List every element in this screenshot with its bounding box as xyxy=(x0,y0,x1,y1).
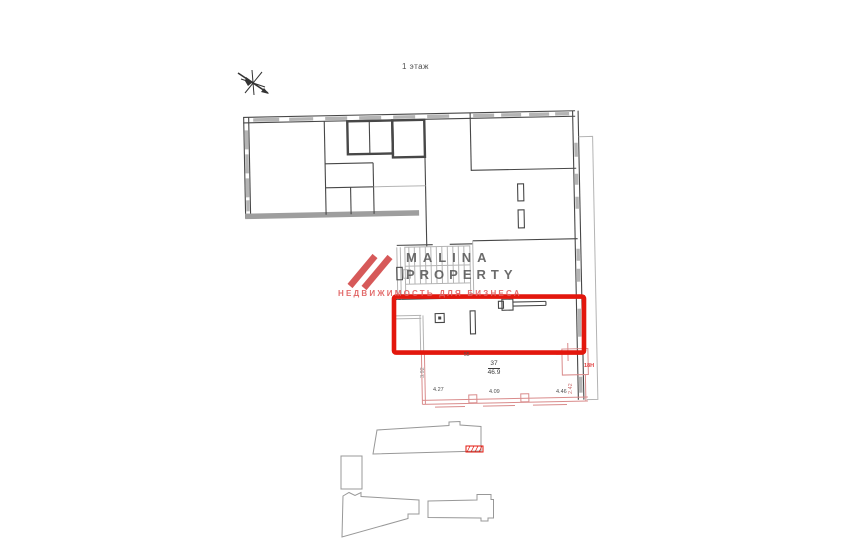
shaft-room-b xyxy=(392,120,425,158)
highlight-zone-interior xyxy=(395,298,547,352)
key-plan-building-3 xyxy=(428,495,494,522)
dimension-bottom-2: 4.09 xyxy=(489,389,500,395)
floor-label: 1 этаж xyxy=(402,62,429,71)
key-plan-building-2 xyxy=(342,493,419,538)
key-plan xyxy=(341,422,494,538)
highlight-rectangle xyxy=(394,297,584,353)
unit-number-area-label: 37 46.9 xyxy=(483,360,505,377)
thick-gray-wall xyxy=(245,213,419,216)
dimension-bottom-3: 4.46 xyxy=(556,389,567,395)
north-arrow-icon xyxy=(238,70,269,95)
unit-inline-note: 55 xyxy=(464,352,470,358)
watermark-brand-line1: MALINA xyxy=(406,250,493,265)
watermark-tagline: НЕДВИЖИМОСТЬ ДЛЯ БИЗНЕСА xyxy=(338,289,522,298)
unit-number: 37 xyxy=(488,360,499,369)
dimension-bottom-1: 4.27 xyxy=(433,387,444,393)
left-wall xyxy=(244,117,251,218)
partition-stub xyxy=(470,311,475,334)
dimension-left: 3.92 xyxy=(420,367,426,378)
key-plan-building-1 xyxy=(373,422,481,455)
right-wall xyxy=(573,111,584,400)
unit-area: 46.9 xyxy=(488,369,501,376)
watermark-brand-line2: PROPERTY xyxy=(406,267,518,282)
dimension-right: 2.42 xyxy=(568,383,574,394)
key-plan-annex xyxy=(341,456,362,489)
zone-label: 18Н xyxy=(584,363,594,369)
watermark-logo-icon xyxy=(350,256,390,288)
floorplan-page: 1 этаж MALINA PROPERTY НЕДВИЖИМОСТЬ ДЛЯ … xyxy=(0,0,865,554)
